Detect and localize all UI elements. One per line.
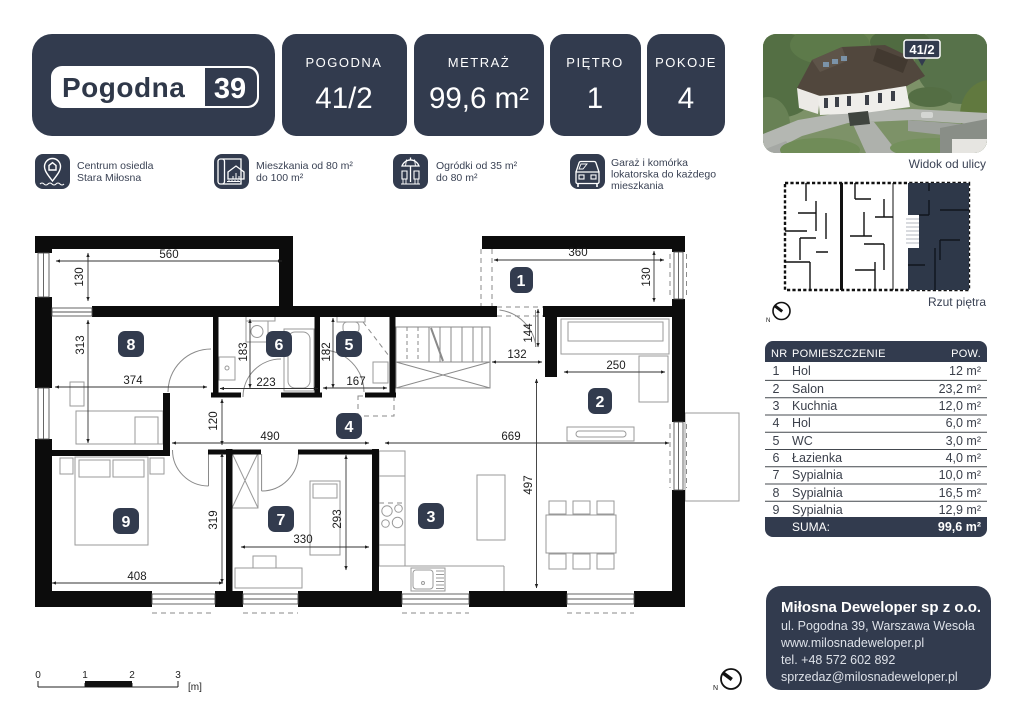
svg-text:N: N <box>713 685 718 692</box>
svg-text:182: 182 <box>321 342 333 361</box>
svg-text:130: 130 <box>641 267 653 286</box>
svg-text:Łazienka: Łazienka <box>792 451 842 465</box>
svg-text:Pogodna: Pogodna <box>62 72 185 103</box>
svg-text:12,0 m²: 12,0 m² <box>939 399 981 413</box>
svg-text:WC: WC <box>792 434 813 448</box>
svg-text:183: 183 <box>238 342 250 361</box>
svg-text:6: 6 <box>773 451 780 465</box>
svg-text:do 80 m²: do 80 m² <box>436 172 478 184</box>
svg-text:41/2: 41/2 <box>315 82 372 115</box>
svg-text:4: 4 <box>678 82 694 115</box>
svg-text:5: 5 <box>345 337 354 354</box>
svg-text:7: 7 <box>277 512 286 529</box>
svg-text:Hol: Hol <box>792 364 811 378</box>
svg-text:4: 4 <box>345 419 354 436</box>
svg-text:0: 0 <box>35 670 41 681</box>
svg-text:23,2 m²: 23,2 m² <box>939 382 981 396</box>
svg-text:1: 1 <box>587 82 603 115</box>
svg-text:490: 490 <box>260 431 279 443</box>
svg-text:99,6 m²: 99,6 m² <box>429 82 529 115</box>
svg-text:497: 497 <box>523 475 535 494</box>
svg-text:6: 6 <box>275 337 284 354</box>
svg-text:9: 9 <box>122 514 131 531</box>
svg-text:1: 1 <box>517 273 526 290</box>
svg-text:130: 130 <box>74 267 86 286</box>
svg-text:12,9 m²: 12,9 m² <box>939 503 981 517</box>
svg-text:360: 360 <box>568 247 587 259</box>
svg-text:250: 250 <box>606 360 625 372</box>
svg-text:N: N <box>766 318 770 324</box>
svg-text:Salon: Salon <box>792 382 824 396</box>
svg-text:9: 9 <box>773 503 780 517</box>
svg-text:POW.: POW. <box>951 348 981 360</box>
svg-text:2: 2 <box>596 394 605 411</box>
svg-text:223: 223 <box>256 377 275 389</box>
svg-text:[m]: [m] <box>188 682 202 693</box>
svg-text:3: 3 <box>427 509 436 526</box>
svg-text:167: 167 <box>346 376 365 388</box>
svg-text:319: 319 <box>208 510 220 529</box>
svg-text:Garaż i komórka: Garaż i komórka <box>611 157 688 169</box>
svg-text:Mieszkania od 80 m²: Mieszkania od 80 m² <box>256 160 353 172</box>
svg-text:408: 408 <box>127 571 146 583</box>
svg-text:560: 560 <box>159 249 178 261</box>
svg-text:Sypialnia: Sypialnia <box>792 486 843 500</box>
svg-text:lokatorska do każdego: lokatorska do każdego <box>611 169 716 181</box>
svg-text:Sypialnia: Sypialnia <box>792 468 843 482</box>
svg-text:sprzedaz@milosnadeweloper.pl: sprzedaz@milosnadeweloper.pl <box>781 670 958 684</box>
svg-text:Miłosna Deweloper sp z o.o.: Miłosna Deweloper sp z o.o. <box>781 599 981 616</box>
svg-text:PIĘTRO: PIĘTRO <box>566 55 623 70</box>
svg-text:8: 8 <box>127 337 136 354</box>
svg-text:www.milosnadeweloper.pl: www.milosnadeweloper.pl <box>780 636 924 650</box>
svg-text:Sypialnia: Sypialnia <box>792 503 843 517</box>
svg-text:1: 1 <box>82 670 88 681</box>
svg-text:374: 374 <box>123 375 143 387</box>
svg-text:120: 120 <box>208 411 220 430</box>
svg-text:Kuchnia: Kuchnia <box>792 399 837 413</box>
svg-text:do 100 m²: do 100 m² <box>256 172 304 184</box>
svg-text:Hol: Hol <box>792 416 811 430</box>
svg-text:99,6 m²: 99,6 m² <box>938 520 981 534</box>
svg-text:POKOJE: POKOJE <box>655 55 717 70</box>
svg-text:2: 2 <box>773 382 780 396</box>
svg-text:12 m²: 12 m² <box>949 364 981 378</box>
svg-text:SUMA:: SUMA: <box>792 520 830 534</box>
svg-text:3: 3 <box>175 670 181 681</box>
svg-text:7: 7 <box>773 468 780 482</box>
svg-text:mieszkania: mieszkania <box>611 180 664 192</box>
svg-text:Ogródki od 35 m²: Ogródki od 35 m² <box>436 160 518 172</box>
svg-text:tel. +48 572 602 892: tel. +48 572 602 892 <box>781 653 895 667</box>
svg-text:313: 313 <box>75 335 87 354</box>
svg-text:4,0 m²: 4,0 m² <box>946 451 981 465</box>
svg-text:Rzut piętra: Rzut piętra <box>928 295 986 309</box>
svg-text:ul. Pogodna 39, Warszawa Wesoł: ul. Pogodna 39, Warszawa Wesoła <box>781 619 975 633</box>
svg-text:Stara Miłosna: Stara Miłosna <box>77 172 141 184</box>
svg-text:Widok od ulicy: Widok od ulicy <box>909 157 986 171</box>
svg-text:41/2: 41/2 <box>909 42 934 57</box>
svg-text:8: 8 <box>773 486 780 500</box>
svg-text:1: 1 <box>773 364 780 378</box>
svg-text:39: 39 <box>214 73 246 105</box>
svg-text:METRAŻ: METRAŻ <box>448 55 510 70</box>
svg-text:Centrum osiedla: Centrum osiedla <box>77 160 154 172</box>
svg-text:NR: NR <box>771 348 788 360</box>
svg-text:3: 3 <box>773 399 780 413</box>
svg-text:16,5 m²: 16,5 m² <box>939 486 981 500</box>
svg-text:293: 293 <box>332 509 344 528</box>
svg-text:POMIESZCZENIE: POMIESZCZENIE <box>792 348 886 360</box>
svg-text:2: 2 <box>129 670 135 681</box>
svg-text:6,0 m²: 6,0 m² <box>946 416 981 430</box>
svg-text:POGODNA: POGODNA <box>306 55 383 70</box>
svg-text:330: 330 <box>293 534 312 546</box>
svg-text:3,0 m²: 3,0 m² <box>946 434 981 448</box>
svg-text:4: 4 <box>773 416 780 430</box>
svg-text:669: 669 <box>501 431 520 443</box>
svg-text:144: 144 <box>523 323 535 343</box>
svg-text:5: 5 <box>773 434 780 448</box>
svg-text:132: 132 <box>507 349 526 361</box>
svg-text:10,0 m²: 10,0 m² <box>939 468 981 482</box>
